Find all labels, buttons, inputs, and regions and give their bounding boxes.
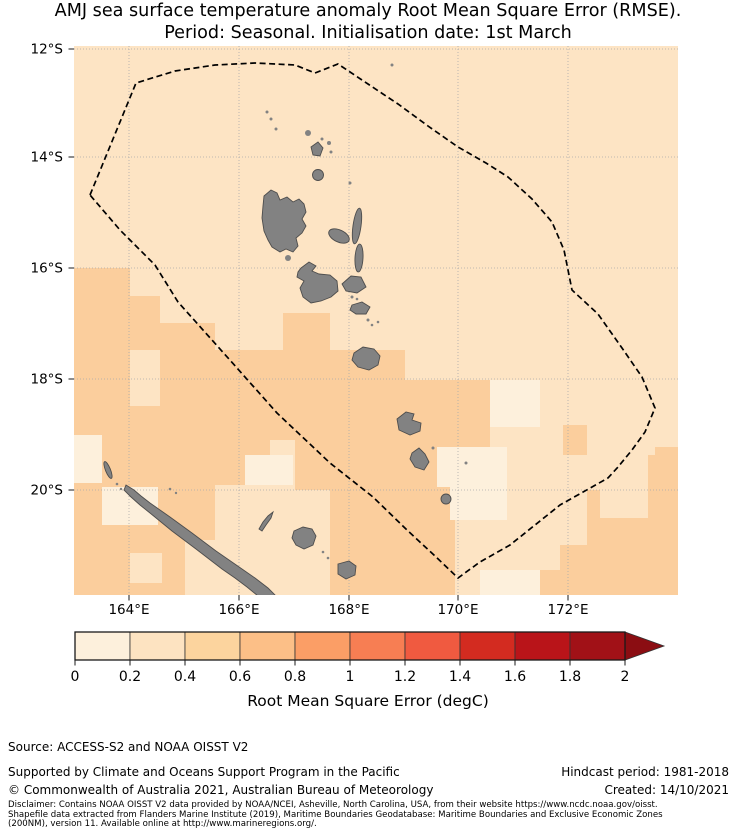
- svg-text:1.2: 1.2: [394, 669, 416, 685]
- colorbar-segment: [405, 632, 460, 660]
- svg-text:0.8: 0.8: [284, 669, 306, 685]
- hindcast-period-text: Hindcast period: 1981-2018: [561, 765, 729, 779]
- lon-label-168e: 168°E: [328, 602, 369, 618]
- svg-text:1.4: 1.4: [449, 669, 471, 685]
- svg-text:0.2: 0.2: [119, 669, 141, 685]
- source-text: Source: ACCESS-S2 and NOAA OISST V2: [8, 740, 248, 754]
- copyright-text: © Commonwealth of Australia 2021, Austra…: [8, 783, 433, 797]
- colorbar-segment: [515, 632, 570, 660]
- colorbar-segment: [240, 632, 295, 660]
- colorbar-tick-labels: 0 0.2 0.4 0.6 0.8 1 1.2 1.4 1.6 1.8 2: [71, 669, 630, 685]
- lat-label-18s: 18°S: [31, 372, 64, 388]
- lat-label-16s: 16°S: [31, 261, 64, 277]
- lon-label-166e: 166°E: [218, 602, 259, 618]
- svg-text:1: 1: [346, 669, 355, 685]
- svg-text:2: 2: [621, 669, 630, 685]
- colorbar-segment: [185, 632, 240, 660]
- lon-label-172e: 172°E: [547, 602, 588, 618]
- colorbar-overflow-arrow: [625, 632, 664, 660]
- svg-text:0.6: 0.6: [229, 669, 251, 685]
- created-date-text: Created: 14/10/2021: [604, 783, 729, 797]
- colorbar-segment: [130, 632, 185, 660]
- lat-label-14s: 14°S: [31, 150, 64, 166]
- lon-label-164e: 164°E: [108, 602, 149, 618]
- colorbar-ticks: [75, 660, 625, 666]
- svg-text:1.6: 1.6: [504, 669, 526, 685]
- disclaimer: Disclaimer: Contains NOAA OISST V2 data …: [8, 801, 734, 830]
- colorbar-segment: [295, 632, 350, 660]
- lon-axis-labels: 164°E 166°E 168°E 170°E 172°E: [108, 602, 588, 618]
- colorbar-segments: [75, 632, 625, 660]
- map-canvas: 12°S 14°S 16°S 18°S 20°S 164°E 166°E 168…: [0, 0, 736, 720]
- svg-text:1.8: 1.8: [559, 669, 581, 685]
- svg-text:0.4: 0.4: [174, 669, 196, 685]
- lon-label-170e: 170°E: [437, 602, 478, 618]
- island-aneityum: [441, 494, 451, 504]
- disclaimer-line-3: (200NM), version 11. Available online at…: [8, 820, 734, 830]
- colorbar-segment: [570, 632, 625, 660]
- svg-text:0: 0: [71, 669, 80, 685]
- lat-label-12s: 12°S: [31, 42, 64, 58]
- supported-by-text: Supported by Climate and Oceans Support …: [8, 765, 400, 779]
- colorbar: 0 0.2 0.4 0.6 0.8 1 1.2 1.4 1.6 1.8 2 Ro…: [71, 632, 664, 710]
- colorbar-segment: [350, 632, 405, 660]
- colorbar-segment: [460, 632, 515, 660]
- island-gaua: [313, 170, 324, 181]
- lat-axis-labels: 12°S 14°S 16°S 18°S 20°S: [31, 42, 64, 499]
- colorbar-segment: [75, 632, 130, 660]
- figure: AMJ sea surface temperature anomaly Root…: [0, 0, 736, 839]
- colorbar-title: Root Mean Square Error (degC): [247, 692, 489, 710]
- lat-label-20s: 20°S: [31, 483, 64, 499]
